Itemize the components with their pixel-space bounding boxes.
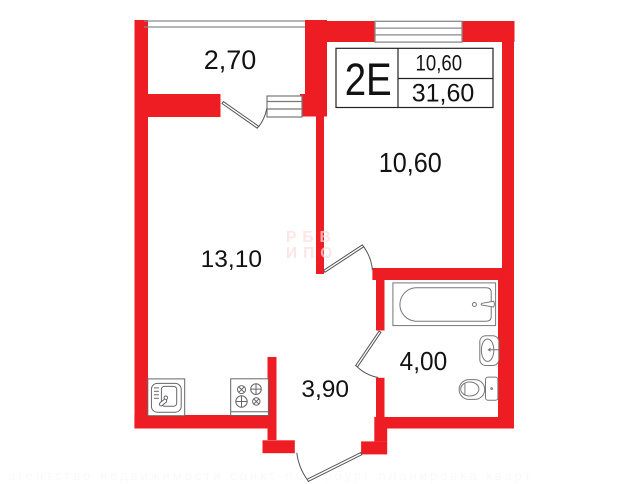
svg-text:31,60: 31,60 (412, 79, 475, 107)
svg-text:4,00: 4,00 (400, 346, 448, 376)
svg-text:2Е: 2Е (345, 54, 392, 105)
svg-text:3,90: 3,90 (301, 376, 349, 403)
svg-text:10,60: 10,60 (416, 51, 463, 76)
svg-text:РБВ: РБВ (286, 229, 337, 246)
svg-text:ИПО: ИПО (286, 245, 338, 262)
svg-text:2,70: 2,70 (204, 45, 257, 75)
svg-text:10,60: 10,60 (379, 147, 442, 178)
svg-text:агентство недвижимости санкт-п: агентство недвижимости санкт-петербург п… (8, 468, 534, 483)
svg-text:13,10: 13,10 (201, 246, 262, 273)
